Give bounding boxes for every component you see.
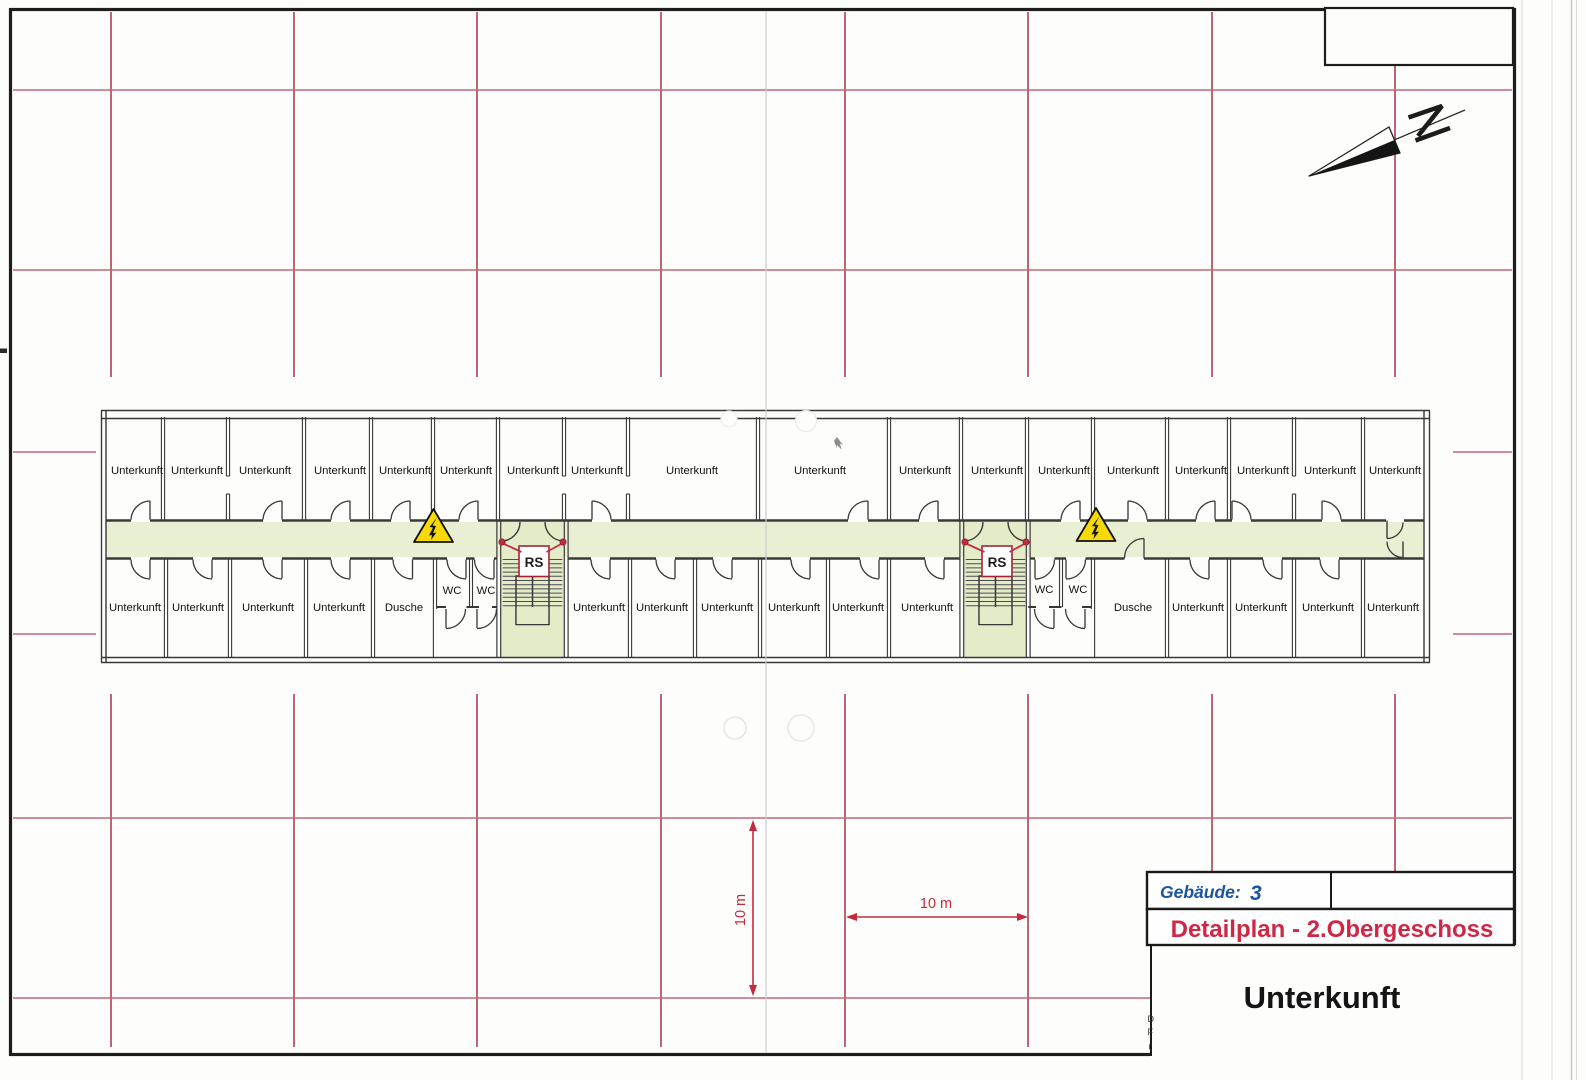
svg-text:Unterkunft: Unterkunft [1304, 465, 1357, 477]
svg-text:Unterkunft: Unterkunft [636, 602, 689, 614]
svg-text:3: 3 [1250, 882, 1262, 905]
svg-text:Unterkunft: Unterkunft [1237, 465, 1290, 477]
svg-text:WC: WC [443, 585, 462, 597]
svg-text:RS: RS [988, 555, 1007, 570]
svg-text:Unterkunft: Unterkunft [314, 465, 367, 477]
svg-text:WC: WC [1035, 584, 1054, 596]
svg-text:Unterkunft: Unterkunft [768, 602, 821, 614]
svg-text:Unterkunft: Unterkunft [666, 465, 719, 477]
svg-text:Unterkunft: Unterkunft [571, 465, 624, 477]
svg-text:Unterkunft: Unterkunft [507, 465, 560, 477]
svg-text:Unterkunft: Unterkunft [701, 602, 754, 614]
svg-text:Unterkunft: Unterkunft [1235, 602, 1288, 614]
svg-text:Dusche: Dusche [385, 602, 423, 614]
svg-text:Unterkunft: Unterkunft [1367, 602, 1420, 614]
svg-text:Unterkunft: Unterkunft [1302, 602, 1355, 614]
svg-text:RS: RS [525, 555, 544, 570]
svg-text:WC: WC [477, 585, 496, 597]
svg-text:Unterkunft: Unterkunft [901, 602, 954, 614]
svg-text:Unterkunft: Unterkunft [1038, 465, 1091, 477]
svg-text:F: F [1148, 1027, 1154, 1037]
svg-text:Unterkunft: Unterkunft [899, 465, 952, 477]
svg-text:Unterkunft: Unterkunft [440, 465, 493, 477]
svg-text:Unterkunft: Unterkunft [1244, 980, 1401, 1015]
svg-text:Unterkunft: Unterkunft [239, 465, 292, 477]
svg-text:10 m: 10 m [733, 894, 749, 926]
svg-text:Unterkunft: Unterkunft [1107, 465, 1160, 477]
svg-text:Unterkunft: Unterkunft [313, 602, 366, 614]
svg-text:Detailplan - 2.Obergeschoss: Detailplan - 2.Obergeschoss [1171, 916, 1494, 943]
svg-text:Unterkunft: Unterkunft [242, 602, 295, 614]
svg-text:Dusche: Dusche [1114, 602, 1152, 614]
svg-text:Unterkunft: Unterkunft [172, 602, 225, 614]
svg-text:Unterkunft: Unterkunft [573, 602, 626, 614]
svg-text:Unterkunft: Unterkunft [1175, 465, 1228, 477]
svg-text:Unterkunft: Unterkunft [1369, 465, 1422, 477]
svg-text:Unterkunft: Unterkunft [832, 602, 885, 614]
svg-text:(: ( [1149, 1041, 1152, 1051]
svg-text:Unterkunft: Unterkunft [971, 465, 1024, 477]
svg-text:D: D [1148, 1014, 1155, 1024]
svg-text:Unterkunft: Unterkunft [794, 465, 847, 477]
svg-text:10 m: 10 m [920, 896, 952, 912]
svg-text:Unterkunft: Unterkunft [1172, 602, 1225, 614]
svg-text:WC: WC [1069, 584, 1088, 596]
svg-text:Unterkunft: Unterkunft [171, 465, 224, 477]
svg-text:Gebäude:: Gebäude: [1160, 882, 1241, 902]
svg-text:Unterkunft: Unterkunft [379, 465, 432, 477]
svg-text:Unterkunft: Unterkunft [109, 602, 162, 614]
svg-text:Unterkunft: Unterkunft [111, 465, 164, 477]
